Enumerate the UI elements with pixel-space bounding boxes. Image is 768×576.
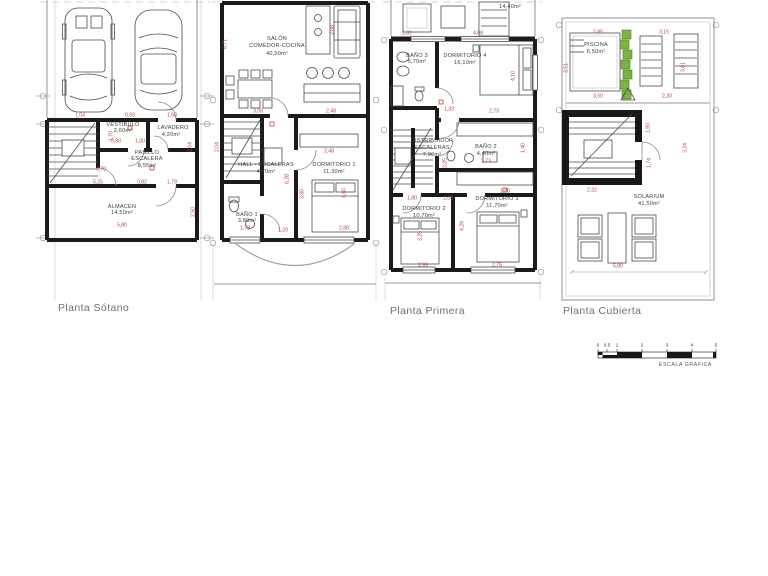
dimension-label: 4,10 <box>511 71 516 81</box>
dimension-label: 2,48 <box>324 149 334 154</box>
outdoor-table-set <box>578 213 656 263</box>
room-label: DISTRIBUIDOR <box>411 139 454 145</box>
planter-plants <box>620 30 632 99</box>
dimension-label: 1,32 <box>444 107 454 112</box>
dimension-label: 1,80 <box>500 189 510 194</box>
room-label: ESCALERA <box>131 157 162 163</box>
dimension-label: 1,81 <box>402 31 412 36</box>
room-label: 41,50m² <box>638 202 660 208</box>
dimension-label: 2,30 <box>662 94 672 99</box>
room-label: DORMITORIO 4 <box>443 54 486 60</box>
room-label: SOLARIUM <box>634 195 665 201</box>
dimension-label: 2,73 <box>481 159 491 164</box>
room-label: LAVADERO <box>157 126 188 132</box>
dimension-label: 3,61 <box>681 62 686 72</box>
dimension-label: 4,70 <box>96 167 106 172</box>
wardrobe <box>457 123 533 136</box>
dimension-label: 1,80 <box>407 196 417 201</box>
dimension-label: 2,48 <box>326 109 336 114</box>
dimension-label: 2,04 <box>188 142 193 152</box>
room-label: 7,90m² <box>423 153 442 159</box>
dimension-label: 2,04 <box>215 142 220 152</box>
scale-tick-label: 0.5 <box>604 345 611 350</box>
entrance-arc <box>236 244 354 266</box>
dimension-label: 1,04 <box>75 113 85 118</box>
kitchen-island <box>306 6 330 54</box>
dimension-label: 5,80 <box>117 223 127 228</box>
room-label: 4,70m² <box>257 170 276 176</box>
room-label: 4,20m² <box>162 133 181 139</box>
room-label: 11,70m² <box>486 204 508 210</box>
room-label: 3,80m² <box>238 219 257 225</box>
room-label: 5,70m² <box>408 60 427 66</box>
room-label: DORMITORIO 1 <box>312 163 355 169</box>
dimension-label: 3,25 <box>443 158 448 168</box>
dimension-label: 0,82 <box>137 180 147 185</box>
dimension-label: 3,80 <box>300 189 305 199</box>
room-label: ESCALERAS <box>414 146 449 152</box>
room-label: 6,50m² <box>587 50 606 56</box>
toilet <box>229 197 239 212</box>
dimension-label: 2,73 <box>489 109 499 114</box>
scale-tick-label: 3 <box>666 345 669 350</box>
room-label: 14,50m² <box>111 211 133 217</box>
car-top-view <box>63 8 115 112</box>
bed <box>393 216 439 264</box>
room-label: PISCINA <box>584 43 608 49</box>
room-label: 8,55m² <box>138 164 157 170</box>
dimension-label: 4,08 <box>473 31 483 36</box>
dimension-label: 6,71 <box>223 39 228 49</box>
dimension-label: 2,08 <box>330 25 335 35</box>
plan-title-sotano: Planta Sótano <box>58 302 129 314</box>
dimension-label: 2,99 <box>418 263 428 268</box>
staircase <box>569 114 635 176</box>
dimension-label: 2,85 <box>593 30 603 35</box>
room-label: COMEDOR-COCINA <box>249 44 305 50</box>
room-label: DORMITORIO 3 <box>475 197 518 203</box>
bed <box>312 180 358 232</box>
dimension-label: 1,60 <box>167 113 177 118</box>
scale-tick-label: 0 <box>597 345 600 350</box>
plan-sotano-drawing <box>40 0 210 300</box>
room-label: 11,30m² <box>323 170 345 176</box>
dimension-label: 3,08 <box>253 109 263 114</box>
dimension-line <box>570 270 708 274</box>
radiator-icon <box>270 122 274 126</box>
sun-lounger <box>640 36 662 86</box>
terrace-furniture <box>403 2 509 36</box>
room-label: DORMITORIO 2 <box>402 207 445 213</box>
dimension-label: 1,70 <box>109 131 114 141</box>
room-label: 40,50m² <box>266 52 288 58</box>
scale-caption: ESCALA GRÁFICA <box>612 362 712 368</box>
dimension-label: 3,50 <box>593 94 603 99</box>
wardrobe <box>300 134 358 147</box>
car-top-view <box>135 10 182 110</box>
bed <box>477 210 527 262</box>
room-label: 10,70m² <box>413 214 435 220</box>
dimension-label: 0,93 <box>125 113 135 118</box>
wardrobe <box>457 172 533 185</box>
dimension-label: 4,60 <box>342 188 347 198</box>
dimension-label: 1,79 <box>167 180 177 185</box>
dimension-label: 1,73 <box>240 226 250 231</box>
dimension-label: 3,24 <box>683 143 688 153</box>
scale-tick-label: 4 <box>691 345 694 350</box>
room-label: 14,40m² <box>499 5 521 11</box>
dimension-label: 3,15 <box>659 30 669 35</box>
dining-table <box>226 70 272 108</box>
dimension-label: 1,90 <box>646 123 651 133</box>
dimension-label: 4,29 <box>460 221 465 231</box>
dimension-label: 2,75 <box>492 263 502 268</box>
room-label: 4,40m² <box>477 152 496 158</box>
radiator-icon <box>439 100 443 104</box>
dimension-label: 1,00 <box>135 139 145 144</box>
bar-stools <box>304 68 360 103</box>
dimension-label: 2,88 <box>339 226 349 231</box>
scale-tick-label: 2 <box>641 345 644 350</box>
dimension-label: 1,74 <box>647 158 652 168</box>
room-label: 2,60m² <box>114 129 133 135</box>
dimension-label: 2,50 <box>191 207 196 217</box>
sofa <box>334 6 360 58</box>
scale-bar <box>592 341 724 375</box>
dimension-label: 5,25 <box>93 180 103 185</box>
room-label: SALÓN <box>267 37 287 43</box>
floorplan-sheet: Planta Sótano Planta Primera Planta Cubi… <box>0 0 768 576</box>
plan-title-cubierta: Planta Cubierta <box>563 305 641 317</box>
dimension-label: 1,40 <box>521 143 526 153</box>
dimension-label: 1,03 <box>443 196 453 201</box>
walls <box>222 3 368 240</box>
dimension-label: 3,51 <box>564 63 569 73</box>
dimension-label: 6,28 <box>285 174 290 184</box>
dimension-label: 2,32 <box>587 188 597 193</box>
dimension-label: 1,20 <box>278 228 288 233</box>
room-label: HALL - ESCALERAS <box>238 163 294 169</box>
dimension-label: 3,25 <box>418 231 423 241</box>
scale-tick-label: 5 <box>715 345 718 350</box>
plan-primera-drawing <box>383 0 543 300</box>
plan-title-primera: Planta Primera <box>390 305 465 317</box>
scale-tick-label: 1 <box>616 345 619 350</box>
room-label: BAÑO 2 <box>475 145 497 151</box>
room-label: 16,10m² <box>454 61 476 67</box>
dimension-label: 5,80 <box>613 264 623 269</box>
plan-cubierta-drawing <box>558 0 720 305</box>
